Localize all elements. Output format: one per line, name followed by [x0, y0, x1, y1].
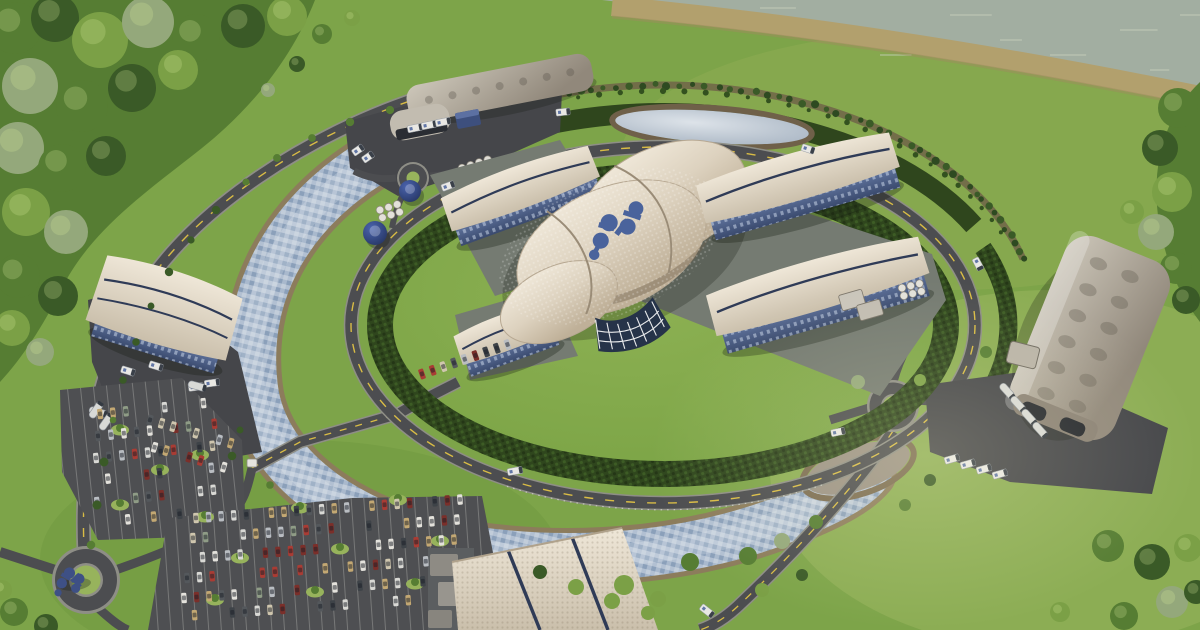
car-glass: [238, 552, 242, 557]
island-tree: [211, 594, 219, 602]
conifer-tree: [980, 206, 984, 210]
conifer-tree: [798, 100, 806, 108]
car-glass: [212, 421, 216, 426]
car-glass: [124, 409, 128, 414]
car-glass: [111, 410, 115, 415]
car-glass: [417, 520, 421, 525]
parked-car: [105, 473, 111, 484]
conifer-tree: [908, 142, 915, 149]
car-glass: [207, 594, 211, 599]
parked-car: [97, 409, 103, 420]
parked-car: [272, 566, 278, 577]
conifer-tree: [978, 196, 984, 202]
car-glass: [186, 424, 190, 429]
car-glass: [210, 574, 214, 579]
conifer-tree: [897, 143, 903, 149]
conifer-tree: [932, 157, 940, 165]
car-glass: [200, 555, 204, 560]
conifer-tree: [866, 120, 874, 128]
parked-car: [444, 495, 450, 506]
parked-car: [398, 558, 404, 569]
parked-car: [181, 593, 187, 604]
parked-car: [93, 453, 99, 464]
car-glass: [295, 588, 299, 593]
parked-car: [262, 547, 268, 558]
tree-highlight: [115, 70, 137, 92]
conifer-tree: [724, 92, 730, 98]
parked-car: [330, 600, 336, 611]
car-glass: [333, 585, 337, 590]
parked-car: [121, 428, 127, 439]
roadside-tree: [110, 417, 117, 424]
tree-highlight: [44, 281, 62, 299]
parked-car: [157, 468, 163, 479]
parked-car: [190, 533, 196, 544]
car-glass: [318, 604, 322, 609]
roadside-tree: [273, 154, 281, 162]
car-glass: [220, 593, 224, 598]
parked-car: [119, 450, 125, 461]
car-glass: [445, 498, 449, 503]
car-glass: [109, 432, 113, 437]
tree-highlight: [1124, 203, 1135, 214]
car-glass: [304, 528, 308, 533]
car-glass: [194, 515, 198, 520]
tree-highlight: [315, 27, 324, 36]
car-glass: [171, 447, 175, 452]
flat-shed: [428, 610, 452, 628]
parked-car: [259, 567, 265, 578]
parked-car: [225, 550, 231, 561]
parked-car: [376, 539, 382, 550]
tree-highlight: [1165, 256, 1179, 270]
conifer-tree: [701, 83, 708, 90]
roadside-tree: [87, 541, 95, 549]
car-glass: [298, 568, 302, 573]
tree-highlight: [1164, 93, 1182, 111]
parked-car: [332, 582, 338, 593]
parked-car: [429, 516, 435, 527]
conifer-tree: [1012, 240, 1019, 247]
conifer-tree: [913, 152, 919, 158]
conifer-tree: [653, 81, 659, 87]
parked-car: [146, 491, 152, 502]
parked-car: [268, 507, 274, 518]
conifer-tree: [1021, 256, 1027, 262]
conifer-tree: [968, 194, 973, 199]
car-glass: [317, 527, 321, 532]
parked-car: [370, 579, 376, 590]
parked-car: [388, 539, 394, 550]
truck-logo: [509, 470, 513, 474]
car-glass: [269, 510, 273, 515]
tree-cluster: [533, 565, 547, 579]
parked-car: [454, 514, 460, 525]
parked-car: [197, 486, 203, 497]
car-glass: [230, 610, 234, 615]
conifer-tree: [845, 114, 852, 121]
parked-car: [212, 551, 218, 562]
island-tree: [311, 586, 319, 594]
parked-car: [256, 587, 262, 598]
conifer-tree: [898, 138, 903, 143]
parked-car: [193, 513, 199, 524]
parked-car: [300, 545, 306, 556]
roadside-tree: [119, 376, 126, 383]
car-glass: [182, 595, 186, 600]
conifer-tree: [639, 83, 646, 90]
car-glass: [348, 564, 352, 569]
car-glass: [145, 450, 149, 455]
car-glass: [244, 512, 248, 517]
parked-car: [405, 595, 411, 606]
car-glass: [452, 537, 456, 542]
car-glass: [270, 589, 274, 594]
conifer-tree: [576, 95, 580, 99]
roadside-tree: [148, 303, 155, 310]
parked-car: [192, 610, 198, 621]
conifer-tree: [600, 85, 605, 90]
conifer-tree: [786, 103, 791, 108]
parked-car: [322, 563, 328, 574]
car-glass: [96, 433, 100, 438]
conifer-tree: [776, 94, 782, 100]
roadside-tree: [187, 236, 194, 243]
conifer-tree: [943, 163, 950, 170]
truck-logo: [409, 127, 413, 131]
car-glass: [206, 515, 210, 520]
conifer-tree: [997, 216, 1005, 224]
car-glass: [147, 428, 151, 433]
parked-car: [243, 509, 249, 520]
car-glass: [291, 528, 295, 533]
car-glass: [213, 554, 217, 559]
parked-car: [373, 559, 379, 570]
conifer-tree: [764, 92, 771, 99]
parked-car: [134, 426, 140, 437]
parked-car: [432, 496, 438, 507]
tree-highlight: [0, 129, 23, 152]
car-glass: [406, 598, 410, 603]
car-glass: [120, 453, 124, 458]
conifer-tree: [824, 106, 829, 111]
parked-car: [420, 576, 426, 587]
roadside-tree: [132, 338, 140, 346]
car-glass: [370, 503, 374, 508]
parked-car: [231, 510, 237, 521]
parked-car: [451, 534, 457, 545]
car-glass: [135, 429, 139, 434]
conifer-tree: [1008, 231, 1015, 238]
conifer-tree: [639, 89, 644, 94]
conifer-tree: [660, 88, 666, 94]
parked-car: [306, 505, 312, 516]
parked-car: [297, 565, 303, 576]
car-glass: [439, 538, 443, 543]
roadside-tree: [237, 427, 244, 434]
conifer-tree: [676, 83, 682, 89]
parked-car: [441, 515, 447, 526]
car-glass: [358, 583, 362, 588]
parked-car: [313, 544, 319, 555]
truck-cab: [566, 108, 570, 115]
car-glass: [345, 505, 349, 510]
car-glass: [151, 514, 155, 519]
conifer-tree: [811, 100, 819, 108]
parked-car: [170, 444, 176, 455]
truck-logo: [437, 121, 441, 125]
parked-car: [200, 552, 206, 563]
car-glass: [98, 411, 102, 416]
tree-highlight: [273, 1, 291, 19]
parked-car: [197, 572, 203, 583]
parked-car: [360, 560, 366, 571]
car-glass: [194, 595, 198, 600]
car-glass: [197, 575, 201, 580]
parked-car: [331, 503, 337, 514]
parked-car: [108, 429, 114, 440]
parked-car: [209, 571, 215, 582]
conifer-tree: [985, 202, 992, 209]
parked-car: [404, 518, 410, 529]
conifer-tree: [618, 90, 623, 95]
parked-car: [123, 406, 129, 417]
roadside-tree: [386, 106, 394, 114]
car-glass: [383, 581, 387, 586]
tree-cluster: [614, 575, 634, 595]
parked-car: [242, 606, 248, 617]
conifer-tree: [625, 83, 632, 90]
car-glass: [191, 535, 195, 540]
parked-car: [316, 524, 322, 535]
parked-car: [426, 536, 432, 547]
tree-highlight: [263, 85, 269, 91]
guard-booth: [247, 459, 257, 467]
parked-car: [200, 398, 206, 409]
island-tree: [116, 499, 124, 507]
roadside-tree: [242, 178, 249, 185]
car-glass: [329, 526, 333, 531]
parked-car: [211, 418, 217, 429]
conifer-tree: [690, 82, 695, 87]
parked-car: [401, 538, 407, 549]
car-glass: [389, 541, 393, 546]
parked-car: [147, 425, 153, 436]
car-glass: [273, 569, 277, 574]
conifer-tree: [876, 127, 883, 134]
conifer-tree: [832, 110, 839, 117]
truck-logo: [206, 382, 209, 386]
car-glass: [282, 509, 286, 514]
conifer-tree: [926, 152, 932, 158]
tree-highlight: [291, 58, 298, 65]
tree-highlight: [228, 10, 248, 30]
car-glass: [94, 455, 98, 460]
parked-car: [219, 590, 225, 601]
conifer-tree: [807, 108, 811, 112]
tree-highlight: [38, 617, 49, 628]
parked-car: [253, 528, 259, 539]
car-glass: [126, 517, 130, 522]
parked-car: [209, 440, 215, 451]
parked-car: [280, 604, 286, 615]
parked-car: [303, 525, 309, 536]
car-glass: [343, 602, 347, 607]
parked-car: [357, 580, 363, 591]
car-glass: [373, 562, 377, 567]
parked-car: [385, 559, 391, 570]
car-glass: [226, 553, 230, 558]
car-glass: [394, 599, 398, 604]
car-glass: [399, 561, 403, 566]
conifer-tree: [727, 86, 733, 92]
sunlight-overlay: [650, 280, 1200, 630]
car-glass: [211, 487, 215, 492]
parked-car: [133, 492, 139, 503]
car-glass: [232, 513, 236, 518]
conifer-tree: [596, 91, 602, 97]
car-glass: [386, 561, 390, 566]
parked-car: [206, 591, 212, 602]
conifer-tree: [967, 184, 973, 190]
car-glass: [201, 401, 205, 406]
car-glass: [219, 514, 223, 519]
parked-car: [319, 504, 325, 515]
parked-car: [206, 512, 212, 523]
conifer-tree: [858, 117, 863, 122]
conifer-tree: [929, 162, 933, 166]
parked-car: [423, 556, 429, 567]
parked-car: [159, 490, 165, 501]
car-glass: [158, 449, 162, 454]
island-tree: [411, 578, 419, 586]
car-glass: [320, 507, 324, 512]
parked-car: [344, 502, 350, 513]
aerial-render: [0, 0, 1200, 630]
conifer-tree: [956, 183, 961, 188]
parked-car: [294, 506, 300, 517]
car-glass: [255, 608, 259, 613]
parked-car: [184, 573, 190, 584]
conifer-tree: [990, 218, 994, 222]
car-glass: [254, 531, 258, 536]
parked-car: [347, 561, 353, 572]
parked-car: [185, 421, 191, 432]
parked-car: [254, 605, 260, 616]
tree-highlight: [9, 194, 31, 216]
car-glass: [376, 542, 380, 547]
car-glass: [133, 451, 137, 456]
parked-car: [269, 586, 275, 597]
tree-highlight: [30, 342, 43, 355]
car-glass: [280, 606, 284, 611]
car-glass: [414, 540, 418, 545]
car-glass: [382, 502, 386, 507]
car-glass: [276, 549, 280, 554]
parked-car: [125, 514, 131, 525]
tree-cluster: [568, 579, 584, 595]
conifer-tree: [862, 127, 867, 132]
car-glass: [159, 493, 163, 498]
parked-car: [208, 462, 214, 473]
car-glass: [408, 501, 412, 506]
car-glass: [134, 495, 138, 500]
car-glass: [203, 535, 207, 540]
parked-car: [395, 578, 401, 589]
parked-car: [194, 592, 200, 603]
parked-car: [281, 506, 287, 517]
tree-highlight: [130, 3, 153, 26]
car-glass: [405, 521, 409, 526]
conifer-tree: [766, 98, 771, 103]
roadside-tree: [165, 268, 173, 276]
car-glass: [301, 548, 305, 553]
car-glass: [241, 532, 245, 537]
conifer-tree: [613, 85, 619, 91]
tree-highlight: [10, 65, 35, 90]
car-glass: [266, 530, 270, 535]
car-glass: [192, 613, 196, 618]
conifer-tree: [746, 95, 750, 99]
tree-highlight: [38, 0, 60, 22]
parked-car: [438, 535, 444, 546]
conifer-tree: [717, 84, 723, 90]
parked-car: [210, 484, 216, 495]
conifer-tree: [975, 192, 981, 198]
roadside-tree: [308, 134, 316, 142]
car-glass: [455, 517, 459, 522]
conifer-tree: [949, 170, 957, 178]
tree-cluster: [604, 593, 620, 609]
parked-car: [294, 585, 300, 596]
parked-car: [278, 526, 284, 537]
parked-car: [110, 407, 116, 418]
car-glass: [243, 609, 247, 614]
parked-car: [288, 546, 294, 557]
car-glass: [185, 575, 189, 580]
parked-car: [317, 601, 323, 612]
parked-car: [151, 511, 157, 522]
conifer-tree: [1016, 248, 1023, 255]
car-glass: [146, 494, 150, 499]
tree-highlight: [346, 12, 353, 19]
car-glass: [294, 508, 298, 513]
parked-car: [275, 546, 281, 557]
parked-car: [240, 529, 246, 540]
car-glass: [106, 476, 110, 481]
parked-car: [328, 523, 334, 534]
roadside-tree: [212, 206, 220, 214]
tree-highlight: [4, 602, 17, 615]
parked-car: [132, 448, 138, 459]
tree-highlight: [0, 315, 16, 331]
parked-car: [176, 508, 182, 519]
conifer-tree: [753, 88, 760, 95]
roadside-tree: [266, 481, 274, 489]
car-glass: [395, 501, 399, 506]
roadside-tree: [228, 452, 237, 461]
car-glass: [314, 547, 318, 552]
truck-logo: [558, 111, 561, 114]
tree-highlight: [1147, 135, 1163, 151]
tree-highlight: [1143, 219, 1159, 235]
truck-logo: [423, 124, 427, 128]
parked-car: [457, 494, 463, 505]
parked-car: [407, 498, 413, 509]
roadside-tree: [346, 118, 354, 126]
parked-car: [237, 549, 243, 560]
tree-highlight: [80, 19, 105, 44]
